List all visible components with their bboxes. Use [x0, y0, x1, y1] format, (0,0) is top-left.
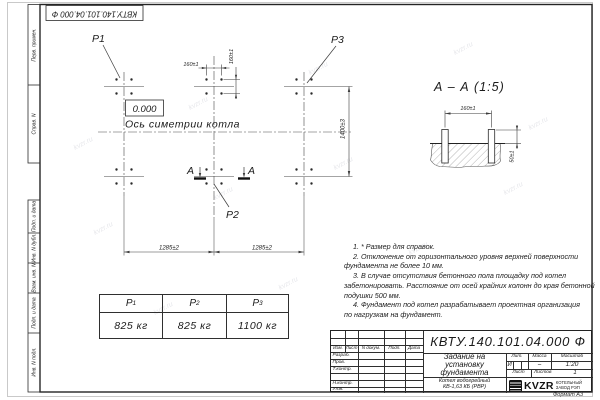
row-tkontr: Т.контр. — [333, 366, 359, 373]
note-line: 1. * Размер для справок. — [344, 242, 594, 252]
section-title: А – А (1:5) — [433, 80, 505, 94]
watermark-text: kvzr.ru — [188, 96, 210, 112]
note-line: 2. Отклонение от горизонтального уровня … — [344, 252, 594, 262]
notes-block: 1. * Размер для справок. 2. Отклонение о… — [344, 242, 594, 320]
lit-value: И — [506, 361, 513, 369]
elevation-mark: 0.000 — [126, 100, 164, 116]
watermark-text: kvzr.ru — [73, 136, 95, 152]
load-table-value-p3: 1100 кг — [227, 313, 288, 338]
anchor-bolt-right — [488, 130, 494, 164]
kvzr-logo-icon — [509, 380, 522, 392]
margin-label-vzam: Взам. инв. N — [32, 263, 38, 293]
axis-label: Ось симетрии котла — [125, 119, 240, 131]
row-utv: Утв. — [333, 387, 359, 393]
watermark-text: kvzr.ru — [503, 181, 525, 197]
load-point-p2-label: P2 — [226, 209, 239, 221]
margin-label-podp1: Подп. и дата — [32, 201, 38, 233]
margin-label-sprav: Справ. N — [32, 113, 38, 134]
mass-value: – — [528, 361, 551, 369]
left-margin-labels: Перв. примен. Справ. N Подп. и дата Инв.… — [32, 28, 38, 376]
load-table-header-p1: Р1 — [100, 295, 163, 313]
watermark-text: kvzr.ru — [453, 41, 475, 57]
lit-label: Лит. — [506, 353, 528, 361]
doc-number-rotated-box: КВТУ.140.101.04.000 Ф — [46, 6, 143, 21]
watermark-text: kvzr.ru — [333, 156, 355, 172]
title-block-doc-title: Задание на установку фундамента — [423, 353, 506, 377]
margin-label-inv-podl: Инв. N подл. — [32, 347, 38, 376]
dim-160-v-label: 160±1 — [229, 49, 235, 64]
section-dim-50-label: 50±1 — [510, 150, 516, 162]
row-razrab: Разраб. — [333, 352, 359, 359]
load-table-header-p2: Р2 — [163, 295, 227, 313]
load-point-p3-label: P3 — [331, 34, 344, 46]
plan-view: 160±1 160±1 1285±2 1285±2 1400±3 — [92, 33, 353, 256]
note-line: подушки 500 мм. — [344, 291, 594, 301]
load-table-value-p1: 825 кг — [100, 313, 163, 338]
load-table: Р1 Р2 Р3 825 кг 825 кг 1100 кг — [100, 295, 288, 338]
header-izm: Изм. — [331, 345, 345, 352]
sheets-label: Листов — [534, 369, 564, 377]
header-podp: Подп. — [384, 345, 405, 352]
watermark-text: kvzr.ru — [93, 221, 115, 237]
drawing-sheet: kvzr.ru kvzr.ru kvzr.ru kvzr.ru kvzr.ru … — [0, 0, 600, 400]
title-block-doc-number: КВТУ.140.101.04.000 Ф — [423, 331, 593, 353]
margin-label-perv: Перв. примен. — [32, 28, 38, 61]
section-dim-160 — [445, 111, 492, 128]
note-line: по нагрузкам на фундамент. — [344, 310, 594, 320]
watermark-text: kvzr.ru — [278, 276, 300, 292]
scale-value: 1:20 — [551, 361, 593, 369]
note-line: забетонировать. Расстояние от осей крайн… — [344, 281, 594, 291]
doc-number-rotated: КВТУ.140.101.04.000 Ф — [51, 10, 137, 19]
title-block: КВТУ.140.101.04.000 Ф Задание на установ… — [330, 330, 592, 392]
elevation-value: 0.000 — [133, 104, 157, 115]
company-name: КОТЕЛЬНЫЙ ЗАВОД РЭП — [556, 381, 582, 391]
format-label: Формат А3 — [538, 392, 598, 398]
header-list: Лист — [345, 345, 358, 352]
margin-label-inv-dubl: Инв. N дубл. — [32, 234, 38, 263]
section-dim-160-label: 160±1 — [460, 106, 475, 112]
kvzr-logo-text: KVZR — [524, 380, 554, 392]
note-line: 4. Фундамент под котел разрабатывает про… — [344, 300, 594, 310]
header-ndocum: N докум. — [358, 345, 384, 352]
anchor-bolt-left — [442, 130, 448, 164]
section-letter-left: А — [186, 165, 194, 177]
scale-label: Масштаб — [551, 353, 593, 361]
note-line: 3. В случае отсутствия бетонного пола пл… — [344, 271, 594, 281]
header-data: Дата — [405, 345, 423, 352]
dim-1285-left-label: 1285±2 — [159, 246, 180, 252]
section-letter-right: А — [247, 165, 255, 177]
left-margin-boxes — [28, 5, 40, 393]
section-view: А – А (1:5) 160±1 50±1 — [430, 80, 521, 168]
watermark-text: kvzr.ru — [528, 116, 550, 132]
title-block-product-name: Котел водогрейный КВ-1,63 КБ (РВР) — [423, 377, 506, 393]
company-cell: KVZR КОТЕЛЬНЫЙ ЗАВОД РЭП — [509, 379, 591, 392]
dim-160-vertical — [224, 67, 241, 99]
load-table-value-p2: 825 кг — [163, 313, 227, 338]
note-line: фундамента не более 10 мм. — [344, 261, 594, 271]
dim-160-h-label: 160±1 — [183, 62, 198, 68]
margin-label-podp2: Подп. и дата — [32, 297, 38, 329]
row-nkontr: Н.контр. — [333, 380, 359, 387]
dim-1285-right-label: 1285±2 — [252, 246, 273, 252]
row-prov: Пров. — [333, 359, 359, 366]
watermark-text: kvzr.ru — [213, 186, 235, 202]
sheets-value: 1 — [563, 369, 587, 377]
mass-label: Масса — [528, 353, 551, 361]
dim-1400-label: 1400±3 — [341, 118, 347, 139]
load-point-p1-label: P1 — [92, 33, 105, 45]
sheet-label: Лист — [506, 369, 531, 377]
load-table-header-p3: Р3 — [227, 295, 288, 313]
